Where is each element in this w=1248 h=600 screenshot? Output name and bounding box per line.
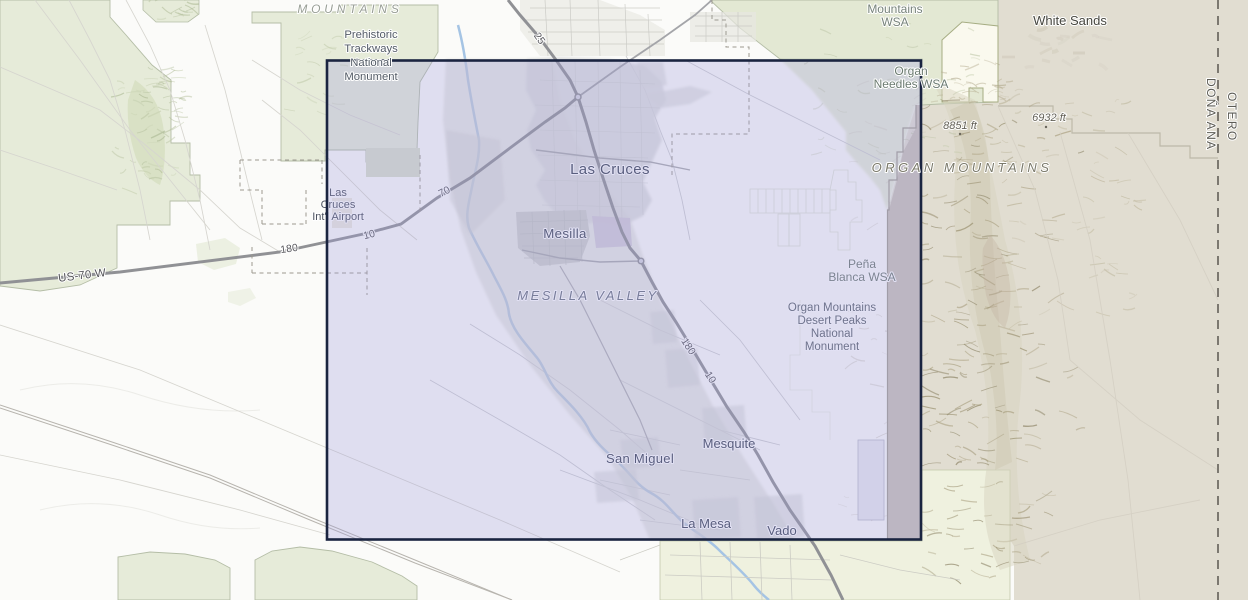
svg-text:WSA: WSA (881, 15, 908, 29)
svg-text:OTERO: OTERO (1225, 92, 1239, 142)
svg-text:180: 180 (280, 242, 299, 256)
svg-text:White Sands: White Sands (1033, 13, 1107, 28)
svg-text:ORGAN MOUNTAINS: ORGAN MOUNTAINS (872, 160, 1053, 175)
svg-text:Needles WSA: Needles WSA (874, 77, 949, 91)
svg-text:6932 ft: 6932 ft (1032, 112, 1067, 124)
svg-text:MOUNTAINS: MOUNTAINS (297, 2, 402, 16)
svg-text:Monument: Monument (344, 71, 398, 83)
svg-text:DOÑA ANA: DOÑA ANA (1204, 78, 1218, 151)
svg-text:Prehistoric: Prehistoric (344, 29, 398, 41)
svg-text:Trackways: Trackways (344, 43, 398, 55)
svg-text:8851 ft: 8851 ft (943, 120, 978, 132)
svg-text:National: National (350, 57, 391, 69)
svg-text:Mountains: Mountains (867, 2, 922, 16)
svg-text:Organ: Organ (894, 64, 927, 78)
